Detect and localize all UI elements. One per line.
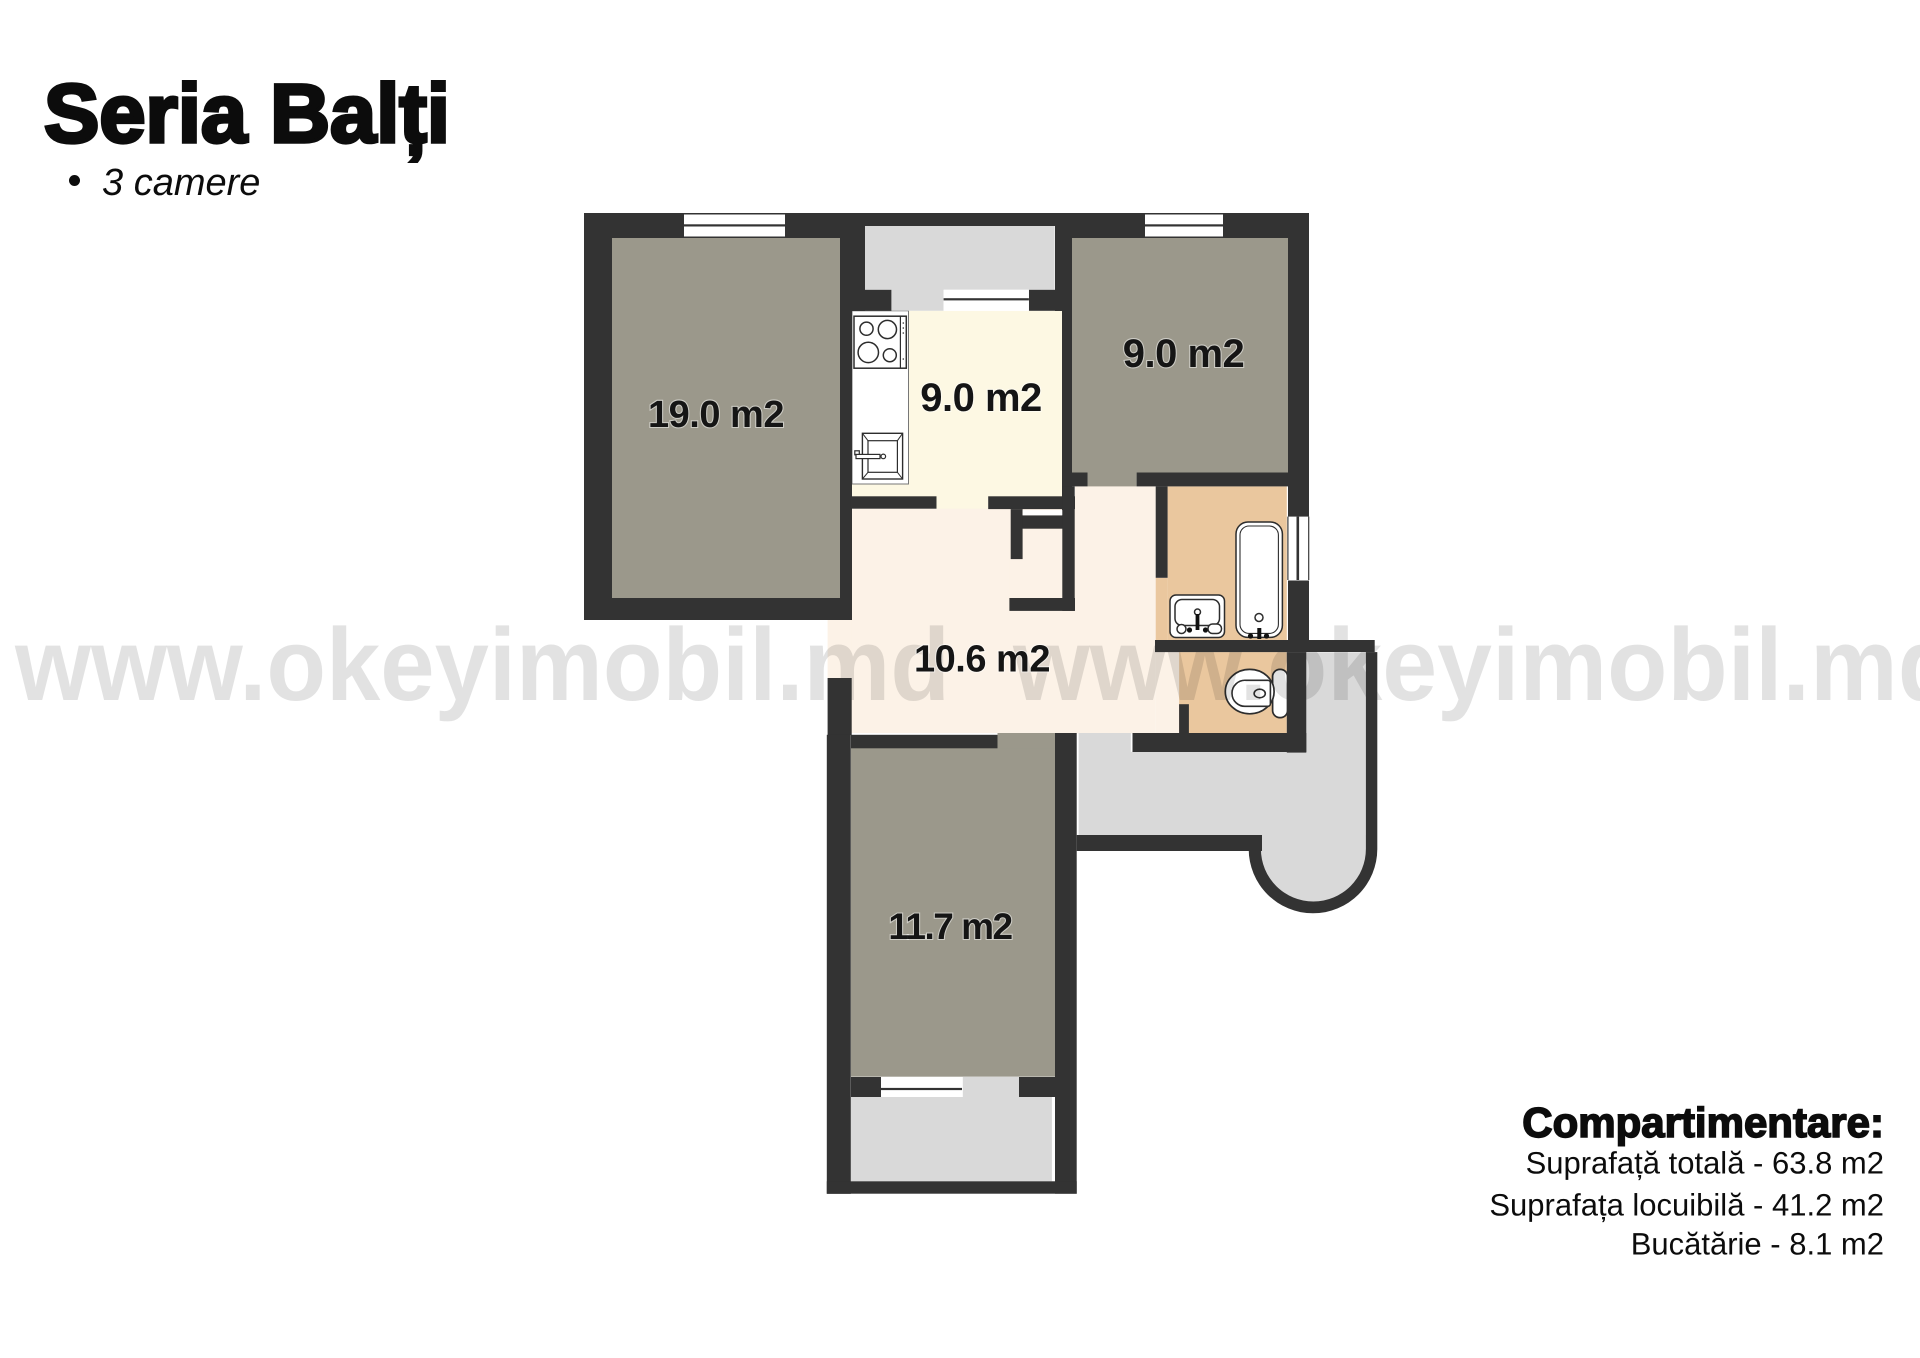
- svg-text:Suprafață totală - 63.8 m2: Suprafață totală - 63.8 m2: [1526, 1145, 1884, 1180]
- svg-text:Bucătărie - 8.1 m2: Bucătărie - 8.1 m2: [1631, 1227, 1884, 1262]
- svg-text:Seria Balți: Seria Balți: [44, 67, 450, 162]
- svg-text:Suprafața locuibilă - 41.2 m2: Suprafața locuibilă - 41.2 m2: [1489, 1187, 1884, 1222]
- svg-text:9.0 m2: 9.0 m2: [1123, 332, 1245, 376]
- svg-text:9.0 m2: 9.0 m2: [920, 376, 1042, 420]
- svg-text:10.6 m2: 10.6 m2: [914, 639, 1050, 681]
- svg-text:Compartimentare:: Compartimentare:: [1522, 1099, 1884, 1146]
- svg-text:19.0 m2: 19.0 m2: [648, 394, 784, 436]
- svg-text:3 camere: 3 camere: [102, 162, 260, 204]
- svg-text:www.okeyimobil.md: www.okeyimobil.md: [1012, 607, 1920, 722]
- svg-text:www.okeyimobil.md: www.okeyimobil.md: [14, 607, 950, 722]
- svg-text:11.7 m2: 11.7 m2: [888, 906, 1012, 947]
